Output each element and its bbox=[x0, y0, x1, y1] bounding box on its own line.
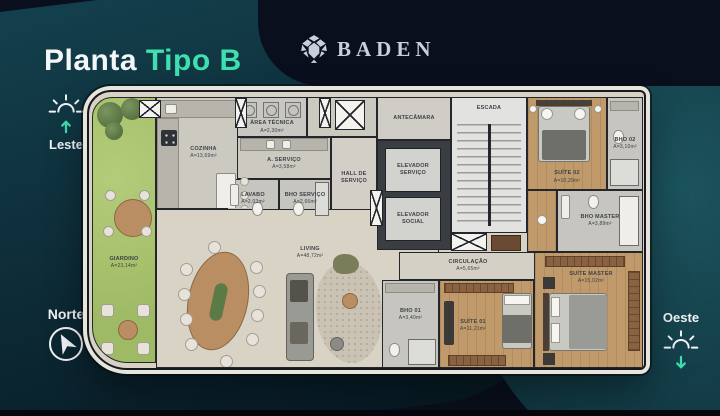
room-giardino: GIARDINOA=23,14m² bbox=[92, 97, 156, 363]
room-label-giardino: GIARDINOA=23,14m² bbox=[93, 256, 155, 270]
bho01-toilet bbox=[389, 343, 400, 357]
room-label-escada: ESCADA bbox=[452, 105, 526, 112]
bhomaster-toilet bbox=[588, 195, 599, 209]
garden-tree bbox=[105, 122, 123, 140]
garden-chair bbox=[141, 226, 152, 237]
cooktop bbox=[161, 130, 177, 146]
brand-name: BADEN bbox=[337, 37, 436, 62]
arrow-down-icon bbox=[674, 355, 688, 370]
compass-north-label: Norte bbox=[48, 306, 85, 322]
room-area-tecnica: ÁREA TÉCNICAA=2,30m² bbox=[237, 97, 307, 137]
title-accent: Tipo B bbox=[146, 44, 242, 77]
room-bho-01: BHO 01A=3,40m² bbox=[382, 280, 439, 368]
dining-chair bbox=[185, 338, 198, 351]
dining-chair bbox=[251, 309, 264, 322]
compass-east: Leste bbox=[38, 92, 94, 152]
dining-chair bbox=[180, 313, 193, 326]
room-label-bho-01: BHO 01A=3,40m² bbox=[399, 308, 422, 322]
bho01-vanity bbox=[385, 283, 435, 293]
room-suite-02: SUÍTE 02A=10,29m² bbox=[527, 97, 607, 190]
master-pillow bbox=[551, 323, 560, 343]
garden-chair bbox=[139, 190, 150, 201]
compass-north: Norte bbox=[38, 306, 94, 363]
room-a-servico: A. SERVIÇOA=3,58m² bbox=[237, 137, 331, 179]
sunrise-icon bbox=[46, 92, 86, 116]
garden-lounge-table bbox=[118, 320, 138, 340]
bho02-vanity bbox=[610, 101, 639, 111]
compass-east-label: Leste bbox=[49, 137, 83, 152]
baden-lion-icon bbox=[299, 34, 329, 64]
garden-lounge-chair bbox=[101, 342, 114, 355]
suite01-pillow bbox=[504, 295, 530, 305]
room-label-bho-02: BHO 02A=3,10m² bbox=[613, 137, 636, 151]
dining-chair bbox=[180, 263, 193, 276]
bho01-shower bbox=[408, 339, 436, 365]
room-label-living: LIVINGA=48,72m² bbox=[265, 246, 355, 260]
room-suite-01: SUÍTE 01A=11,21m² bbox=[439, 280, 534, 368]
elevator-servico: ELEVADOR SERVIÇO bbox=[385, 148, 441, 192]
room-label-a-servico: A. SERVIÇOA=3,58m² bbox=[267, 157, 301, 171]
room-label-cozinha: COZINHAA=13,69m² bbox=[190, 146, 216, 160]
compass-west-label: Oeste bbox=[663, 310, 699, 325]
hall-basin bbox=[537, 215, 547, 225]
elevator-shaft: ELEVADOR SERVIÇO ELEVADOR SOCIAL bbox=[377, 140, 451, 250]
lavabo-vanity bbox=[230, 184, 239, 206]
page-title: Planta Tipo B bbox=[44, 44, 242, 78]
duct-shaft bbox=[139, 100, 161, 118]
room-label-suite-master: SUÍTE MASTERA=15,02m² bbox=[549, 271, 633, 285]
garden-chair bbox=[105, 190, 116, 201]
duct-shaft bbox=[451, 233, 487, 251]
room-label-lavabo: LAVABOA=2,03m² bbox=[241, 192, 265, 206]
room-label-suite-02: SUÍTE 02A=10,29m² bbox=[554, 170, 580, 184]
suite01-closet bbox=[444, 283, 514, 293]
room-label-antecamara: ANTECÂMARA bbox=[393, 115, 434, 122]
bho02-shower bbox=[610, 159, 639, 186]
suite01-blanket bbox=[502, 315, 532, 343]
room-label-elevador-social: ELEVADOR SOCIAL bbox=[386, 212, 440, 226]
ac-condenser bbox=[263, 102, 279, 118]
kitchen-sink bbox=[165, 104, 177, 114]
floor-plan: GIARDINOA=23,14m² COZINHAA=13,69m² ÁREA … bbox=[87, 90, 646, 370]
suite01-wardrobe bbox=[448, 355, 506, 366]
sunset-icon bbox=[661, 328, 701, 352]
room-circulacao: CIRCULAÇÃOA=5,65m² bbox=[399, 252, 537, 280]
living-rug bbox=[316, 263, 382, 363]
room-suite-master: SUÍTE MASTERA=15,02m² bbox=[534, 252, 643, 368]
garden-lounge-chair bbox=[101, 304, 114, 317]
room-label-elevador-servico: ELEVADOR SERVIÇO bbox=[386, 163, 440, 177]
master-closet-top bbox=[545, 256, 625, 267]
compass-west: Oeste bbox=[650, 310, 712, 370]
dining-chair bbox=[178, 288, 191, 301]
duct-shaft bbox=[335, 100, 365, 130]
dining-chair bbox=[253, 285, 266, 298]
pouf bbox=[330, 337, 344, 351]
room-label-area-tecnica: ÁREA TÉCNICAA=2,30m² bbox=[238, 120, 306, 134]
bhomaster-vanity bbox=[561, 195, 570, 219]
room-bho-02: BHO 02A=3,10m² bbox=[607, 97, 643, 190]
sofa-throw bbox=[290, 322, 308, 344]
brand-logo: BADEN bbox=[299, 34, 436, 64]
room-label-bho-servico: BHO SERVIÇOA=2,66m² bbox=[285, 192, 326, 206]
room-bho-master: BHO MASTERA=3,89m² bbox=[557, 190, 643, 252]
room-label-circulacao: CIRCULAÇÃOA=5,65m² bbox=[449, 259, 488, 273]
sofa-throw bbox=[290, 280, 308, 302]
dining-chair bbox=[220, 355, 233, 368]
doormat bbox=[491, 235, 521, 251]
suite02-nightstand bbox=[529, 105, 537, 113]
laundry-sink bbox=[266, 140, 275, 149]
room-label-suite-01: SUÍTE 01A=11,21m² bbox=[444, 319, 502, 333]
duct-shaft bbox=[319, 98, 331, 128]
suite02-pillow bbox=[574, 108, 586, 120]
room-label-bho-master: BHO MASTERA=3,89m² bbox=[581, 214, 620, 228]
bottom-black-bar bbox=[0, 410, 720, 416]
dining-chair bbox=[246, 333, 259, 346]
dining-chair bbox=[250, 261, 263, 274]
bhomaster-tub bbox=[619, 196, 639, 246]
elevator-social: ELEVADOR SOCIAL bbox=[385, 197, 441, 241]
coffee-table bbox=[342, 293, 358, 309]
stair-divider bbox=[488, 124, 491, 226]
master-nightstand bbox=[543, 353, 555, 365]
washer bbox=[282, 140, 291, 149]
suite02-nightstand bbox=[594, 105, 602, 113]
duct-shaft bbox=[370, 190, 383, 226]
slide: Planta Tipo B BADEN bbox=[0, 0, 720, 416]
suite02-pillow bbox=[541, 108, 553, 120]
suite-hallway bbox=[527, 190, 557, 252]
master-pillow bbox=[551, 297, 560, 317]
title-main: Planta bbox=[44, 44, 137, 77]
room-label-hall-servico: HALL DE SERVIÇO bbox=[332, 171, 376, 185]
room-antecamara: ANTECÂMARA bbox=[377, 97, 451, 140]
garden-chair bbox=[103, 226, 114, 237]
island-stool bbox=[240, 177, 249, 186]
dining-chair bbox=[208, 241, 221, 254]
garden-lounge-chair bbox=[137, 304, 150, 317]
garden-lounge-chair bbox=[137, 342, 150, 355]
room-escada: ESCADA bbox=[451, 97, 527, 233]
ac-condenser bbox=[285, 102, 301, 118]
master-blanket bbox=[569, 295, 607, 349]
suite02-blanket bbox=[542, 130, 586, 160]
north-arrow-icon bbox=[47, 325, 85, 363]
arrow-up-icon bbox=[59, 119, 73, 134]
